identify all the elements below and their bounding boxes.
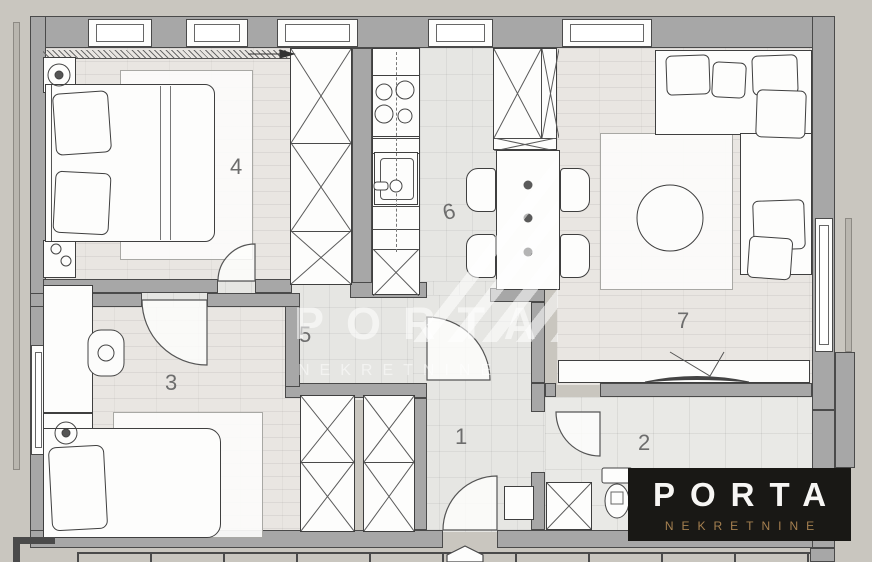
balcony-edge-right (845, 218, 852, 352)
room-label-2: 2 (638, 432, 650, 454)
tall-cabinet-x-icon (493, 48, 557, 150)
sofa-cushion (711, 61, 747, 99)
agency-logo: PORTA NEKRETNINE (628, 468, 851, 541)
sink-basin (380, 158, 414, 200)
radiator-icon (194, 24, 240, 42)
wardrobe-x-icon (290, 48, 352, 285)
radiator-icon (436, 24, 485, 42)
radiator-icon (96, 24, 144, 42)
wardrobe-x-icon (363, 395, 415, 532)
duvet-fold (160, 86, 171, 240)
pillow-icon (52, 90, 112, 156)
chair-icon (466, 168, 496, 212)
sofa-cushion (747, 236, 794, 281)
agency-logo-subtitle: NEKRETNINE (657, 519, 822, 533)
counter-centerline (396, 52, 397, 252)
desk (43, 285, 93, 413)
radiator-icon (819, 225, 829, 345)
sofa-cushion (665, 54, 710, 96)
window-icon (815, 218, 833, 352)
headboard (51, 85, 52, 241)
washing-machine-icon (546, 482, 592, 530)
radiator-icon (35, 352, 42, 448)
wall-bedroom1-bottom-stub (255, 279, 292, 293)
chair-icon (560, 234, 590, 278)
balcony-corner (13, 537, 20, 562)
wall-bedroom2-top-b (207, 293, 300, 307)
wall-bath-top-b (600, 383, 812, 397)
window-icon (562, 19, 652, 47)
wall-kitchen-left (352, 48, 372, 295)
pillow-icon (48, 445, 108, 532)
watermark-subtitle: NEKRETNINE (298, 362, 501, 380)
room-label-7: 7 (677, 310, 689, 332)
wardrobe-x-icon (300, 395, 355, 532)
window-icon (428, 19, 493, 47)
terrace-stub (810, 548, 835, 562)
pillar-right (835, 352, 855, 468)
window-icon (88, 19, 152, 47)
balcony-edge-left (13, 22, 20, 470)
radiator-icon (285, 24, 350, 42)
window-icon (186, 19, 248, 47)
curtain-rail-icon (43, 50, 293, 59)
tv-console (558, 360, 810, 383)
window-icon (277, 19, 358, 47)
chair-icon (560, 168, 590, 212)
room-label-4: 4 (230, 156, 242, 178)
watermark-title: PORTA (294, 298, 558, 350)
wall-bath-left-up (531, 383, 545, 412)
wall-bath-top-a (545, 383, 556, 397)
shoe-cabinet (504, 486, 534, 520)
sofa-cushion (755, 89, 807, 139)
room-label-3: 3 (165, 372, 177, 394)
agency-logo-title: PORTA (638, 476, 841, 514)
pillow-icon (52, 171, 111, 236)
room-label-1: 1 (455, 426, 467, 448)
balcony-railing-icon (77, 552, 810, 562)
nightstand (43, 240, 76, 278)
radiator-icon (570, 24, 644, 42)
rug (600, 133, 733, 290)
floor-plan: 1 2 3 4 5 6 7 PORTA NEKRETNINE PORTA NEK… (0, 0, 872, 562)
wall-corridor-left (413, 398, 427, 530)
